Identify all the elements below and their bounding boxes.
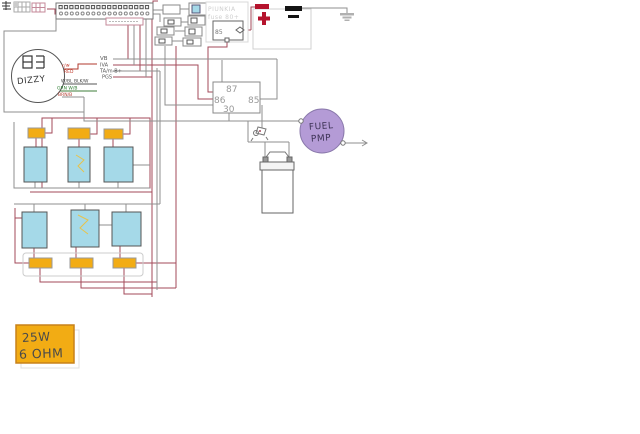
- wire-label-vb: VB: [100, 56, 108, 62]
- wire-label-red: RED: [64, 69, 74, 75]
- mini-grid-icon: [14, 2, 30, 12]
- resistor-label-2: 6 OHM: [19, 345, 64, 362]
- battery-terminals-symbol: [253, 4, 311, 49]
- wiring-diagram-canvas: PIUNKIA fuse 80+ 85: [0, 0, 640, 434]
- fuel-pump: FUEL PMP: [299, 109, 345, 153]
- coil-1a: [24, 147, 47, 182]
- mini-grid-icon-2: [32, 3, 45, 12]
- fuse-note-box: PIUNKIA fuse 80+ 85: [206, 2, 248, 42]
- fuse-2b: [70, 258, 93, 268]
- battery-negative-bar: [285, 6, 302, 11]
- fuel-pump-label-2: PMP: [311, 133, 332, 144]
- corner-sketches: [2, 1, 45, 12]
- wire-label-wbl: W/BL BLK/W: [61, 79, 89, 85]
- wire-label-rw: r/w: [62, 62, 71, 69]
- coil-2c: [112, 212, 141, 246]
- diagram-svg: PIUNKIA fuse 80+ 85: [0, 0, 640, 434]
- distributor-wire-labels: r/w RED W/BL BLK/W GRN W/B BRN/B VB IVA …: [57, 56, 122, 98]
- small-relay-pin: 85: [215, 29, 223, 36]
- fuse-1a: [28, 128, 45, 138]
- coil-group-1: [24, 128, 133, 182]
- resistor-label-1: 25W: [22, 329, 51, 344]
- main-relay: 87 86 85 30: [213, 82, 260, 115]
- coil-2b: [71, 210, 99, 247]
- fuel-pump-label-1: FUEL: [309, 121, 334, 133]
- ballast-resistor: 25W 6 OHM: [16, 325, 79, 368]
- coil-group-2: [22, 210, 143, 276]
- wire-label-grn: GRN W/B: [57, 86, 77, 92]
- battery-positive-bar: [255, 4, 269, 9]
- relay-pin-30: 30: [223, 105, 235, 115]
- inline-valve-sketch: [251, 127, 268, 141]
- fuse-1c: [104, 129, 123, 139]
- ecu-connector: [56, 3, 153, 25]
- relay-pin-87: 87: [226, 85, 237, 95]
- relay-pin-85: 85: [248, 96, 259, 106]
- fuse-note-line1: PIUNKIA: [208, 6, 236, 13]
- ground-icon: [340, 13, 354, 21]
- distributor: DIZZY: [12, 50, 65, 103]
- wire-label-brn: BRN/B: [58, 92, 72, 98]
- coil-2a: [22, 212, 47, 248]
- coil-1c: [104, 147, 133, 182]
- wire-label-pgs: PGS: [102, 75, 112, 81]
- fuse-1b: [68, 128, 90, 139]
- fuse-note-line2: fuse 80+: [208, 14, 239, 21]
- fuse-2a: [29, 258, 52, 268]
- fuse-2c: [113, 258, 136, 268]
- connector-tag: [106, 18, 143, 25]
- car-battery: [260, 152, 294, 213]
- small-relay: 85: [213, 21, 244, 42]
- battery-minus-icon: [288, 15, 299, 18]
